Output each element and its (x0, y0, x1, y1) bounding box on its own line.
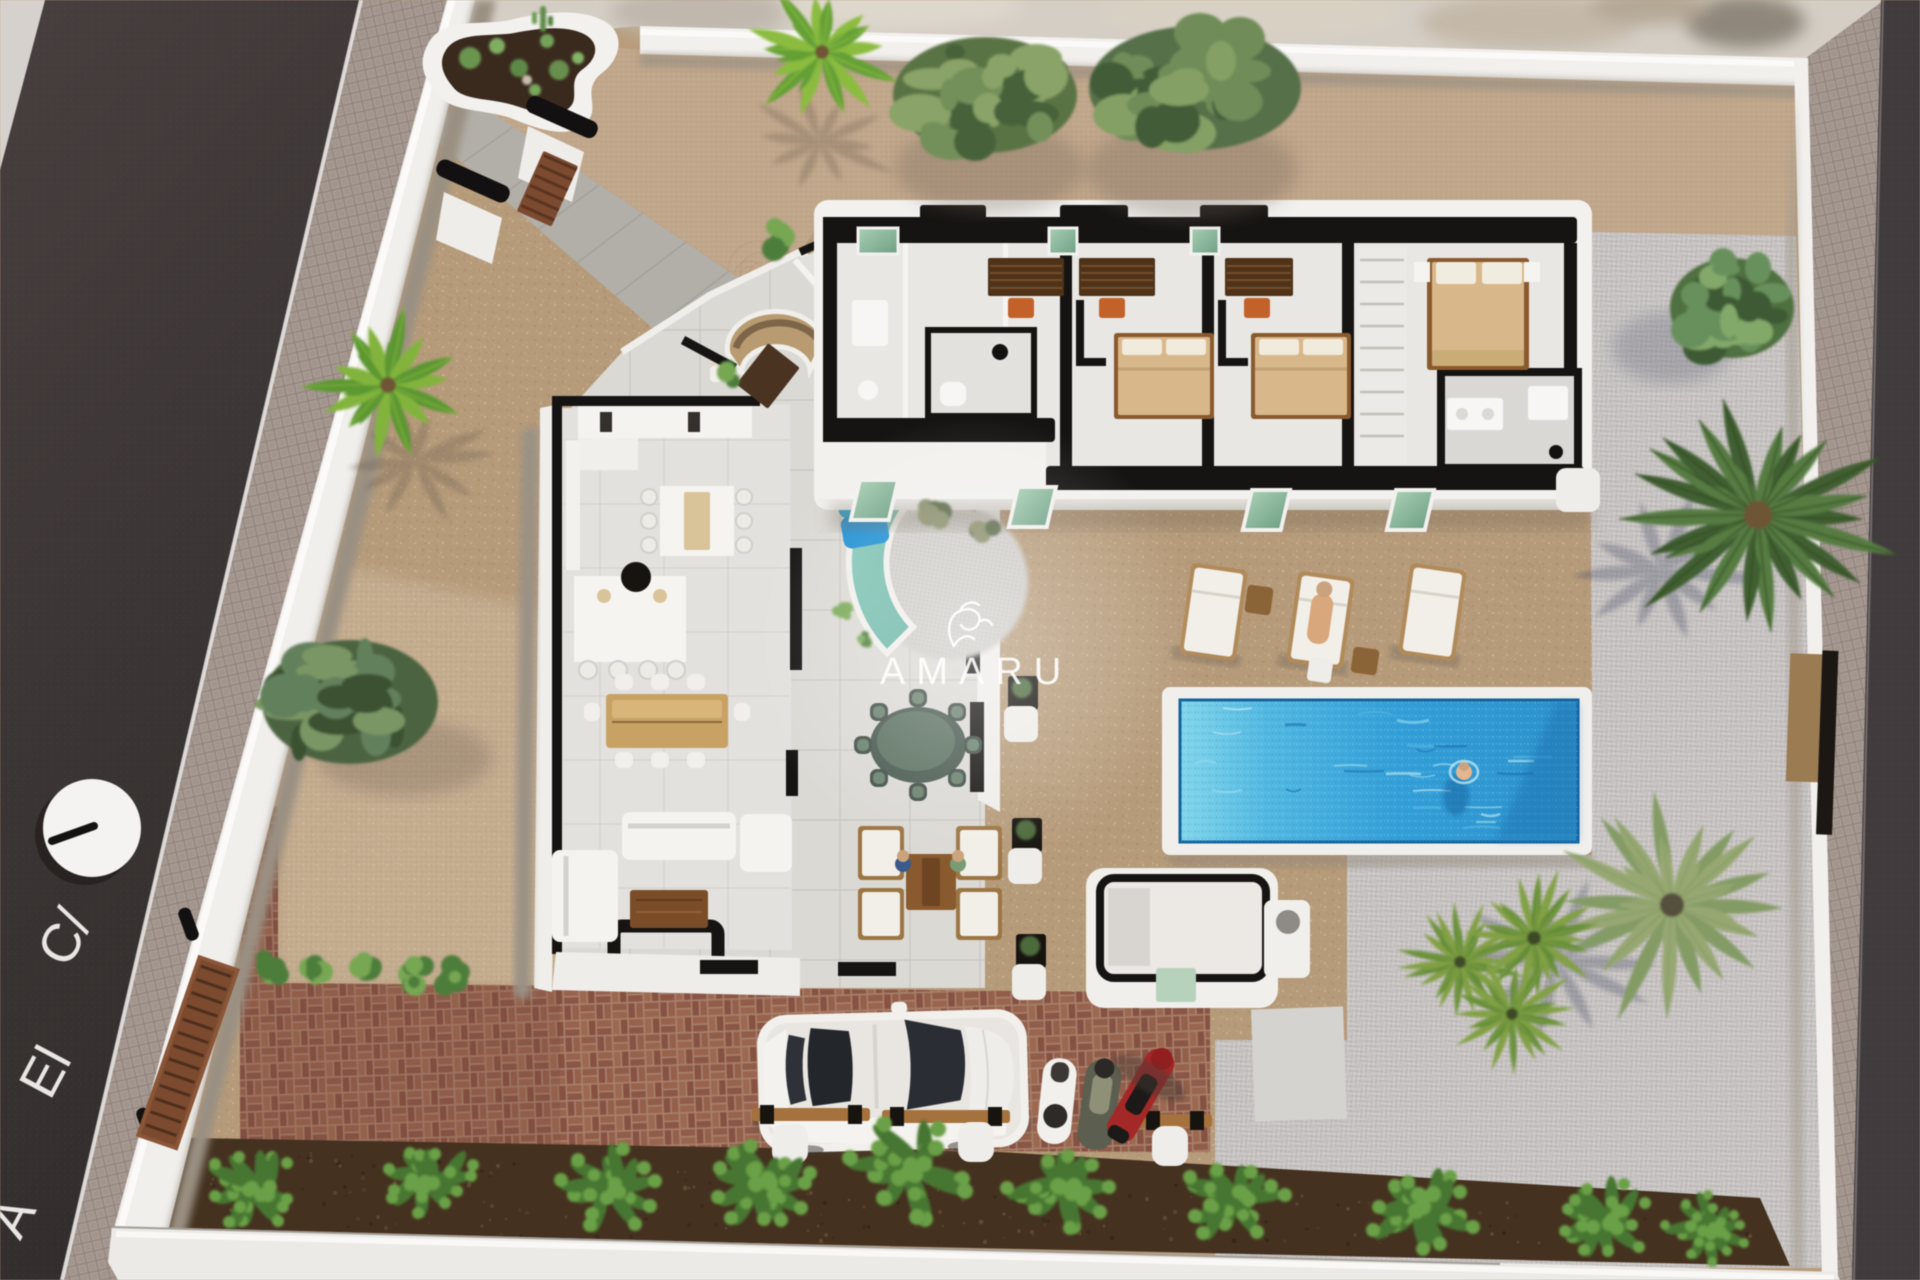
svg-text:AMARU: AMARU (880, 651, 1072, 693)
